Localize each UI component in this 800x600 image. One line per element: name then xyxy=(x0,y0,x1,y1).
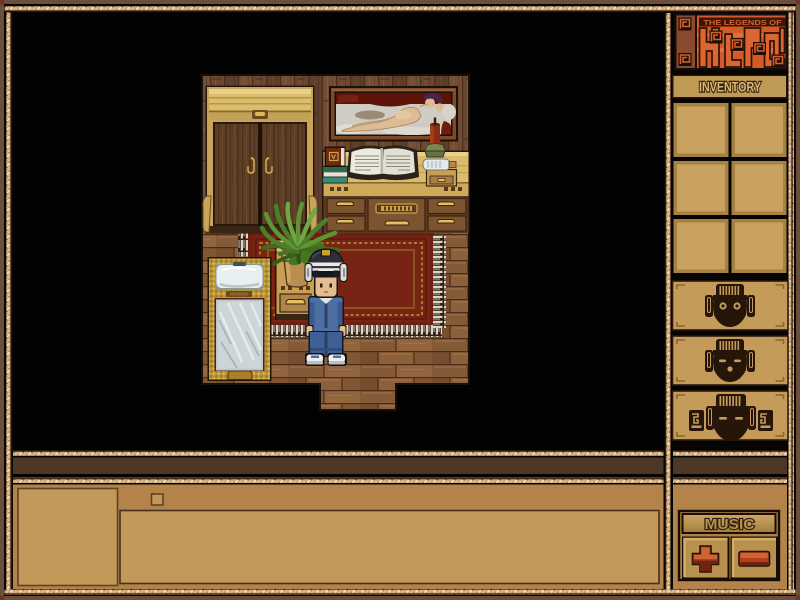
svg-text:MUSIC: MUSIC xyxy=(705,517,756,533)
svg-text:INVENTORY: INVENTORY xyxy=(699,79,762,95)
svg-text:THE LEGENDS OF: THE LEGENDS OF xyxy=(704,20,783,27)
